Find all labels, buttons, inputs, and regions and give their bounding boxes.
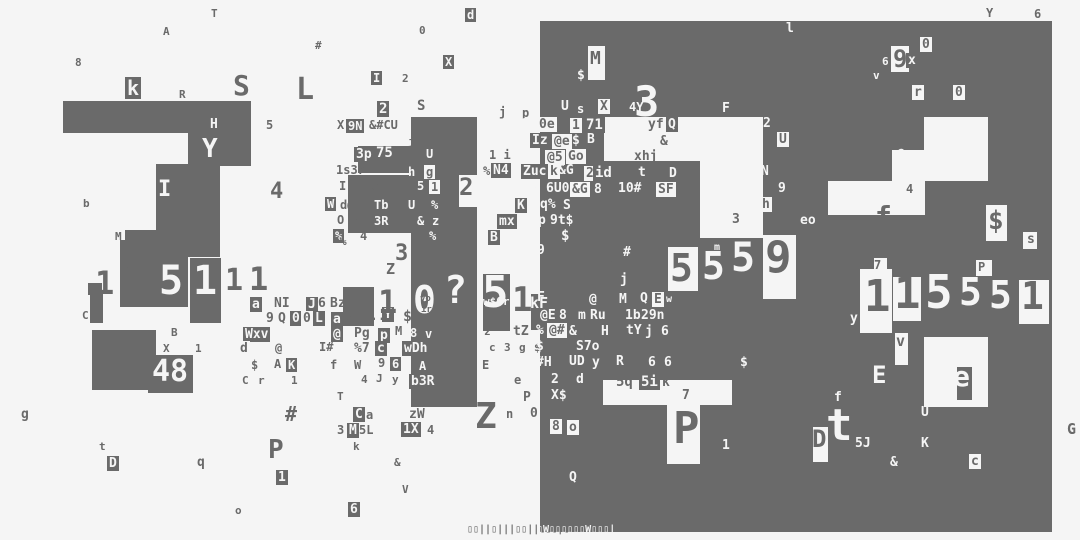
noise-glyph: 5 <box>702 247 725 285</box>
noise-glyph: 5 <box>989 276 1012 314</box>
noise-glyph: K <box>515 198 527 213</box>
noise-glyph: 3 <box>337 424 344 436</box>
noise-glyph: 4 <box>270 181 283 203</box>
noise-glyph: W <box>325 197 336 211</box>
noise-glyph: Zuc <box>521 164 548 179</box>
noise-glyph: $ <box>572 134 580 147</box>
noise-glyph: 3 <box>504 342 511 353</box>
noise-glyph: T <box>337 391 344 402</box>
noise-block <box>188 101 251 166</box>
noise-glyph: Z <box>352 214 359 226</box>
noise-glyph: LI <box>518 230 534 243</box>
noise-glyph: xhj <box>634 150 657 163</box>
noise-glyph: 3R <box>372 214 390 228</box>
noise-glyph: f <box>330 359 337 371</box>
noise-glyph: t <box>638 166 646 179</box>
noise-glyph: 1 <box>276 470 288 485</box>
noise-glyph: r <box>258 375 265 386</box>
noise-glyph: B <box>171 327 178 338</box>
noise-glyph: ▯W▯▯▯▯▯▯W▯▯▯| <box>537 525 615 535</box>
noise-glyph: 1s37 <box>336 164 365 176</box>
noise-glyph: m <box>578 309 586 322</box>
noise-glyph: y <box>850 312 858 325</box>
noise-glyph: A <box>163 26 170 37</box>
noise-glyph: o <box>235 505 242 516</box>
noise-glyph: 9 <box>266 312 274 325</box>
noise-glyph: L <box>313 311 325 326</box>
noise-glyph: W <box>354 359 361 371</box>
noise-glyph: 0 <box>419 25 426 36</box>
noise-glyph: % <box>427 229 438 243</box>
noise-glyph: U <box>777 132 789 147</box>
noise-glyph: B <box>488 230 500 245</box>
noise-glyph: P <box>673 407 700 451</box>
noise-glyph: U <box>408 199 415 211</box>
noise-glyph: J <box>533 390 541 403</box>
noise-glyph: & <box>890 456 898 469</box>
noise-glyph: K <box>921 437 929 450</box>
noise-glyph: % <box>536 324 544 337</box>
noise-glyph: C <box>242 375 249 386</box>
noise-glyph: 71 <box>584 117 605 133</box>
noise-glyph: c <box>375 341 387 356</box>
noise-glyph: E <box>482 359 489 371</box>
noise-glyph: 6 <box>646 355 658 370</box>
noise-glyph: 9t$ <box>550 214 573 227</box>
noise-glyph: 5 <box>959 273 982 311</box>
noise-glyph: 75 <box>376 146 393 160</box>
noise-glyph: L <box>296 75 314 105</box>
noise-glyph: & <box>569 325 577 338</box>
noise-block <box>92 330 156 390</box>
noise-glyph: uf#G <box>357 180 386 192</box>
noise-glyph: @ <box>587 292 599 307</box>
noise-glyph: X$ <box>551 389 567 402</box>
noise-glyph: Wxv <box>243 327 270 342</box>
noise-glyph: g <box>19 407 31 422</box>
noise-glyph: b3R <box>409 374 436 389</box>
noise-glyph: @ <box>275 342 282 354</box>
noise-glyph: eo <box>800 214 816 227</box>
noise-glyph: R <box>616 355 624 368</box>
noise-glyph: 10# <box>618 182 641 195</box>
noise-glyph: 5 <box>925 269 953 315</box>
noise-glyph: 0 <box>301 311 313 326</box>
noise-glyph: 5J <box>855 437 871 450</box>
noise-glyph: v <box>873 70 880 81</box>
noise-glyph: a <box>331 312 343 327</box>
noise-glyph: 4 <box>906 183 913 195</box>
noise-glyph: j <box>645 325 653 338</box>
noise-glyph: h <box>760 197 772 212</box>
noise-glyph: S7o <box>576 340 599 353</box>
noise-glyph: 1 <box>225 266 243 296</box>
noise-glyph: t <box>826 404 853 448</box>
noise-glyph: Go <box>566 149 586 164</box>
noise-glyph: r <box>912 85 924 100</box>
noise-glyph: 7 <box>682 389 690 402</box>
noise-glyph: P <box>268 437 284 463</box>
noise-glyph: % <box>340 236 347 247</box>
noise-glyph: 1 <box>640 251 656 277</box>
noise-glyph: 8 <box>594 183 602 196</box>
noise-glyph: 0 <box>953 85 965 100</box>
noise-glyph: k <box>125 77 141 99</box>
noise-glyph: 4 <box>361 374 368 385</box>
noise-glyph: S <box>417 99 425 113</box>
noise-glyph: v <box>896 334 905 349</box>
noise-glyph: $ <box>251 359 258 371</box>
noise-glyph: j <box>620 273 628 286</box>
noise-glyph: 5 <box>482 271 509 315</box>
noise-glyph: 8 <box>559 309 567 322</box>
noise-glyph: 2 <box>551 373 559 386</box>
noise-glyph: 6 <box>661 325 669 338</box>
noise-glyph: N <box>761 165 769 178</box>
noise-glyph: g <box>424 165 435 179</box>
noise-glyph: e <box>953 363 970 391</box>
noise-glyph: 5 <box>670 249 693 287</box>
glitch-canvas: TA#8d0XI22SRkSLjH5YI4bMX9N&#CU3p75U1s37h… <box>0 0 1080 540</box>
noise-glyph: Q <box>640 292 648 305</box>
noise-glyph: S <box>563 199 571 212</box>
noise-glyph: k <box>353 441 360 452</box>
noise-glyph: % <box>431 199 438 211</box>
noise-glyph: M <box>115 231 122 242</box>
noise-glyph: Iz <box>530 133 550 148</box>
noise-glyph: 1 <box>1021 277 1044 315</box>
noise-glyph: a <box>250 297 262 312</box>
noise-glyph: d <box>576 373 584 386</box>
noise-glyph: 5 <box>266 119 273 131</box>
noise-glyph: 9N <box>346 119 364 133</box>
noise-glyph: # <box>315 40 322 51</box>
noise-glyph: H <box>210 118 218 131</box>
noise-glyph: 1 <box>378 286 397 318</box>
noise-glyph: w <box>666 295 672 305</box>
noise-glyph: $ <box>403 309 412 324</box>
noise-glyph: g <box>519 342 526 353</box>
noise-glyph: S <box>233 72 250 100</box>
noise-glyph: 9 <box>765 236 792 280</box>
noise-glyph: &#CU <box>369 119 398 131</box>
noise-glyph: 1 <box>429 180 440 194</box>
noise-glyph: tY <box>624 323 644 338</box>
noise-glyph: C <box>82 310 89 321</box>
noise-glyph: id <box>593 165 614 181</box>
noise-glyph: C <box>353 407 365 422</box>
noise-glyph: B <box>585 132 597 147</box>
noise-glyph: U <box>921 406 929 419</box>
noise-glyph: I <box>158 179 171 201</box>
noise-glyph: X <box>337 119 344 131</box>
noise-block <box>924 117 988 150</box>
noise-glyph: 48 <box>152 357 188 387</box>
noise-glyph: 5 <box>417 180 424 192</box>
noise-glyph: 5L <box>359 424 373 436</box>
noise-glyph: M <box>619 293 627 306</box>
noise-glyph: h <box>408 166 415 178</box>
noise-glyph: 1 <box>864 275 891 319</box>
noise-glyph: mx <box>497 214 517 229</box>
noise-glyph: r <box>529 183 536 195</box>
noise-glyph: 1 <box>249 263 268 295</box>
noise-glyph: E <box>652 292 664 307</box>
noise-glyph: y <box>592 356 600 369</box>
noise-glyph: A <box>417 359 428 373</box>
noise-glyph: j <box>226 104 233 116</box>
noise-glyph: @# <box>547 323 567 338</box>
noise-glyph: 9 <box>537 244 545 257</box>
noise-glyph: 0 <box>920 37 932 52</box>
noise-glyph: 5 <box>159 261 183 301</box>
noise-glyph: l <box>786 22 794 35</box>
noise-glyph: zW <box>409 408 425 421</box>
noise-glyph: 3p <box>354 147 374 162</box>
noise-glyph: d <box>465 8 476 22</box>
noise-glyph: I <box>339 180 346 192</box>
noise-glyph: 6 <box>664 356 672 369</box>
noise-glyph: 29n <box>641 309 664 322</box>
noise-glyph: D <box>107 456 119 471</box>
noise-glyph: 2 <box>402 73 409 84</box>
noise-glyph: 7 <box>527 199 534 211</box>
noise-glyph: d@P <box>340 199 362 211</box>
noise-glyph: 4 <box>427 424 434 436</box>
noise-glyph: z <box>484 326 491 337</box>
noise-glyph: 8 <box>410 327 417 339</box>
noise-glyph: Y <box>986 7 993 19</box>
noise-glyph: M <box>590 50 601 68</box>
noise-glyph: m7 <box>495 199 509 211</box>
noise-glyph: & <box>660 135 668 148</box>
noise-glyph: z <box>432 215 439 227</box>
noise-glyph: Ru <box>588 308 608 323</box>
noise-block <box>892 150 988 181</box>
noise-glyph: o <box>567 420 579 435</box>
noise-glyph: F <box>722 102 730 115</box>
noise-glyph: 0 <box>528 406 540 421</box>
noise-glyph: 1 <box>345 287 364 319</box>
noise-glyph: wDh <box>402 341 429 356</box>
noise-glyph: A <box>274 358 281 370</box>
noise-glyph: t <box>99 441 106 452</box>
noise-glyph: 5 <box>731 238 755 278</box>
noise-glyph: NI <box>274 297 290 310</box>
noise-glyph: T <box>211 8 218 19</box>
noise-glyph: J <box>376 373 383 384</box>
noise-glyph: H <box>601 325 609 338</box>
noise-glyph: D <box>667 166 679 181</box>
noise-glyph: 1 <box>722 439 730 452</box>
noise-glyph: K <box>286 358 297 372</box>
noise-glyph: & <box>417 215 424 227</box>
noise-glyph: 1 <box>570 118 582 133</box>
noise-glyph: x <box>906 53 918 68</box>
noise-glyph: Z <box>386 262 395 277</box>
noise-glyph: ir <box>421 306 432 315</box>
noise-glyph: F <box>537 291 545 304</box>
noise-glyph: 2 <box>763 117 771 130</box>
noise-glyph: i <box>742 206 750 219</box>
noise-glyph: yf <box>648 118 664 131</box>
noise-glyph: p <box>538 214 546 227</box>
noise-glyph: V <box>402 484 409 495</box>
noise-glyph: y <box>505 182 512 194</box>
noise-glyph: 1 <box>291 375 298 386</box>
noise-glyph: e <box>514 374 521 386</box>
noise-glyph: & <box>394 457 401 468</box>
noise-glyph: Bz <box>330 297 346 310</box>
noise-glyph: 1 <box>195 343 202 354</box>
noise-glyph: P <box>521 390 533 405</box>
noise-glyph: R <box>179 89 186 100</box>
noise-glyph: X <box>163 343 170 354</box>
noise-glyph: tZ <box>513 325 529 338</box>
noise-glyph: @E <box>538 308 558 323</box>
noise-glyph: 1 <box>95 267 114 299</box>
noise-glyph: J <box>306 297 318 312</box>
noise-glyph: @ <box>897 148 905 161</box>
noise-glyph: a <box>366 409 373 421</box>
noise-glyph: 1 <box>122 259 144 295</box>
noise-glyph: 6U0 <box>544 181 571 196</box>
noise-glyph: $ <box>988 208 1004 234</box>
noise-glyph: 5i <box>639 374 660 390</box>
noise-glyph: j <box>499 106 506 118</box>
noise-glyph: &G <box>570 182 590 197</box>
noise-glyph: Q <box>569 471 577 484</box>
noise-glyph: 4 <box>360 230 367 242</box>
noise-glyph: UD <box>569 355 585 368</box>
noise-glyph: 1 <box>894 272 921 316</box>
noise-glyph: 3 <box>395 243 408 265</box>
noise-glyph: D <box>812 427 826 451</box>
noise-glyph: %7 <box>354 342 370 355</box>
noise-glyph: &G <box>558 164 574 177</box>
noise-glyph: #H <box>536 356 552 369</box>
noise-glyph: X <box>598 99 610 114</box>
noise-glyph: b <box>83 198 90 209</box>
noise-glyph: c <box>489 342 496 353</box>
noise-glyph: n <box>506 408 513 420</box>
noise-glyph: c <box>969 454 981 469</box>
noise-glyph: 1b <box>623 308 643 323</box>
noise-glyph: 6 <box>882 56 889 67</box>
noise-glyph: X <box>443 55 454 69</box>
noise-glyph: Q <box>666 117 678 132</box>
noise-glyph: 1 <box>193 261 217 301</box>
noise-glyph: U <box>561 100 569 113</box>
noise-glyph: Z <box>475 399 497 435</box>
noise-glyph: M <box>395 325 402 337</box>
noise-glyph: 7 <box>874 259 881 271</box>
noise-glyph: y <box>392 374 399 385</box>
noise-glyph: $ <box>536 340 544 353</box>
noise-glyph: j <box>408 136 415 147</box>
noise-glyph: 9 <box>521 118 529 131</box>
noise-glyph: v <box>425 328 432 340</box>
noise-glyph: N4 <box>491 163 511 178</box>
noise-glyph: @e <box>552 134 572 149</box>
noise-glyph: 1X <box>401 422 421 437</box>
noise-glyph: 3 <box>730 212 742 227</box>
noise-glyph: Q <box>278 312 286 325</box>
noise-glyph: ? <box>444 271 467 309</box>
noise-glyph: 6 <box>348 502 360 517</box>
noise-glyph: s <box>577 103 584 115</box>
noise-glyph: # <box>623 246 631 259</box>
noise-glyph: w$0r <box>483 296 510 307</box>
noise-glyph: k <box>662 376 670 389</box>
noise-glyph: 2 <box>377 101 389 117</box>
noise-glyph: f <box>875 203 892 231</box>
noise-glyph: 9 <box>778 182 786 195</box>
noise-glyph: E <box>946 199 954 212</box>
noise-glyph: d <box>238 341 250 356</box>
noise-glyph: q% <box>540 198 556 211</box>
noise-glyph: 2 <box>459 175 473 199</box>
noise-glyph: # <box>285 404 297 424</box>
noise-glyph: M <box>347 423 359 438</box>
noise-glyph: s <box>1025 232 1037 247</box>
noise-glyph: Pg <box>354 327 370 340</box>
noise-glyph: 8 <box>75 57 82 68</box>
noise-glyph: O <box>337 214 344 226</box>
noise-glyph: U <box>426 148 433 160</box>
noise-glyph: vo <box>420 295 431 304</box>
noise-glyph: Y <box>202 136 218 162</box>
noise-glyph: 6 <box>1034 8 1041 20</box>
noise-glyph: 1 i <box>489 149 511 161</box>
noise-glyph: E <box>872 363 886 387</box>
noise-glyph: $ <box>738 355 750 370</box>
noise-glyph: 6 <box>318 297 326 310</box>
noise-glyph: G <box>1065 421 1078 438</box>
noise-glyph: q <box>195 455 207 470</box>
noise-glyph: 9 <box>378 357 385 369</box>
noise-glyph: I# <box>319 341 333 353</box>
noise-glyph: $ <box>561 229 569 243</box>
noise-glyph: SF <box>656 182 676 197</box>
noise-glyph: $ <box>577 69 585 82</box>
noise-glyph: 0e <box>537 117 557 132</box>
noise-glyph: 5q <box>616 375 633 389</box>
noise-glyph: I <box>371 71 382 85</box>
noise-glyph: 8 <box>550 419 562 434</box>
noise-glyph: 6 <box>390 357 401 371</box>
noise-glyph: Tb <box>372 198 390 212</box>
